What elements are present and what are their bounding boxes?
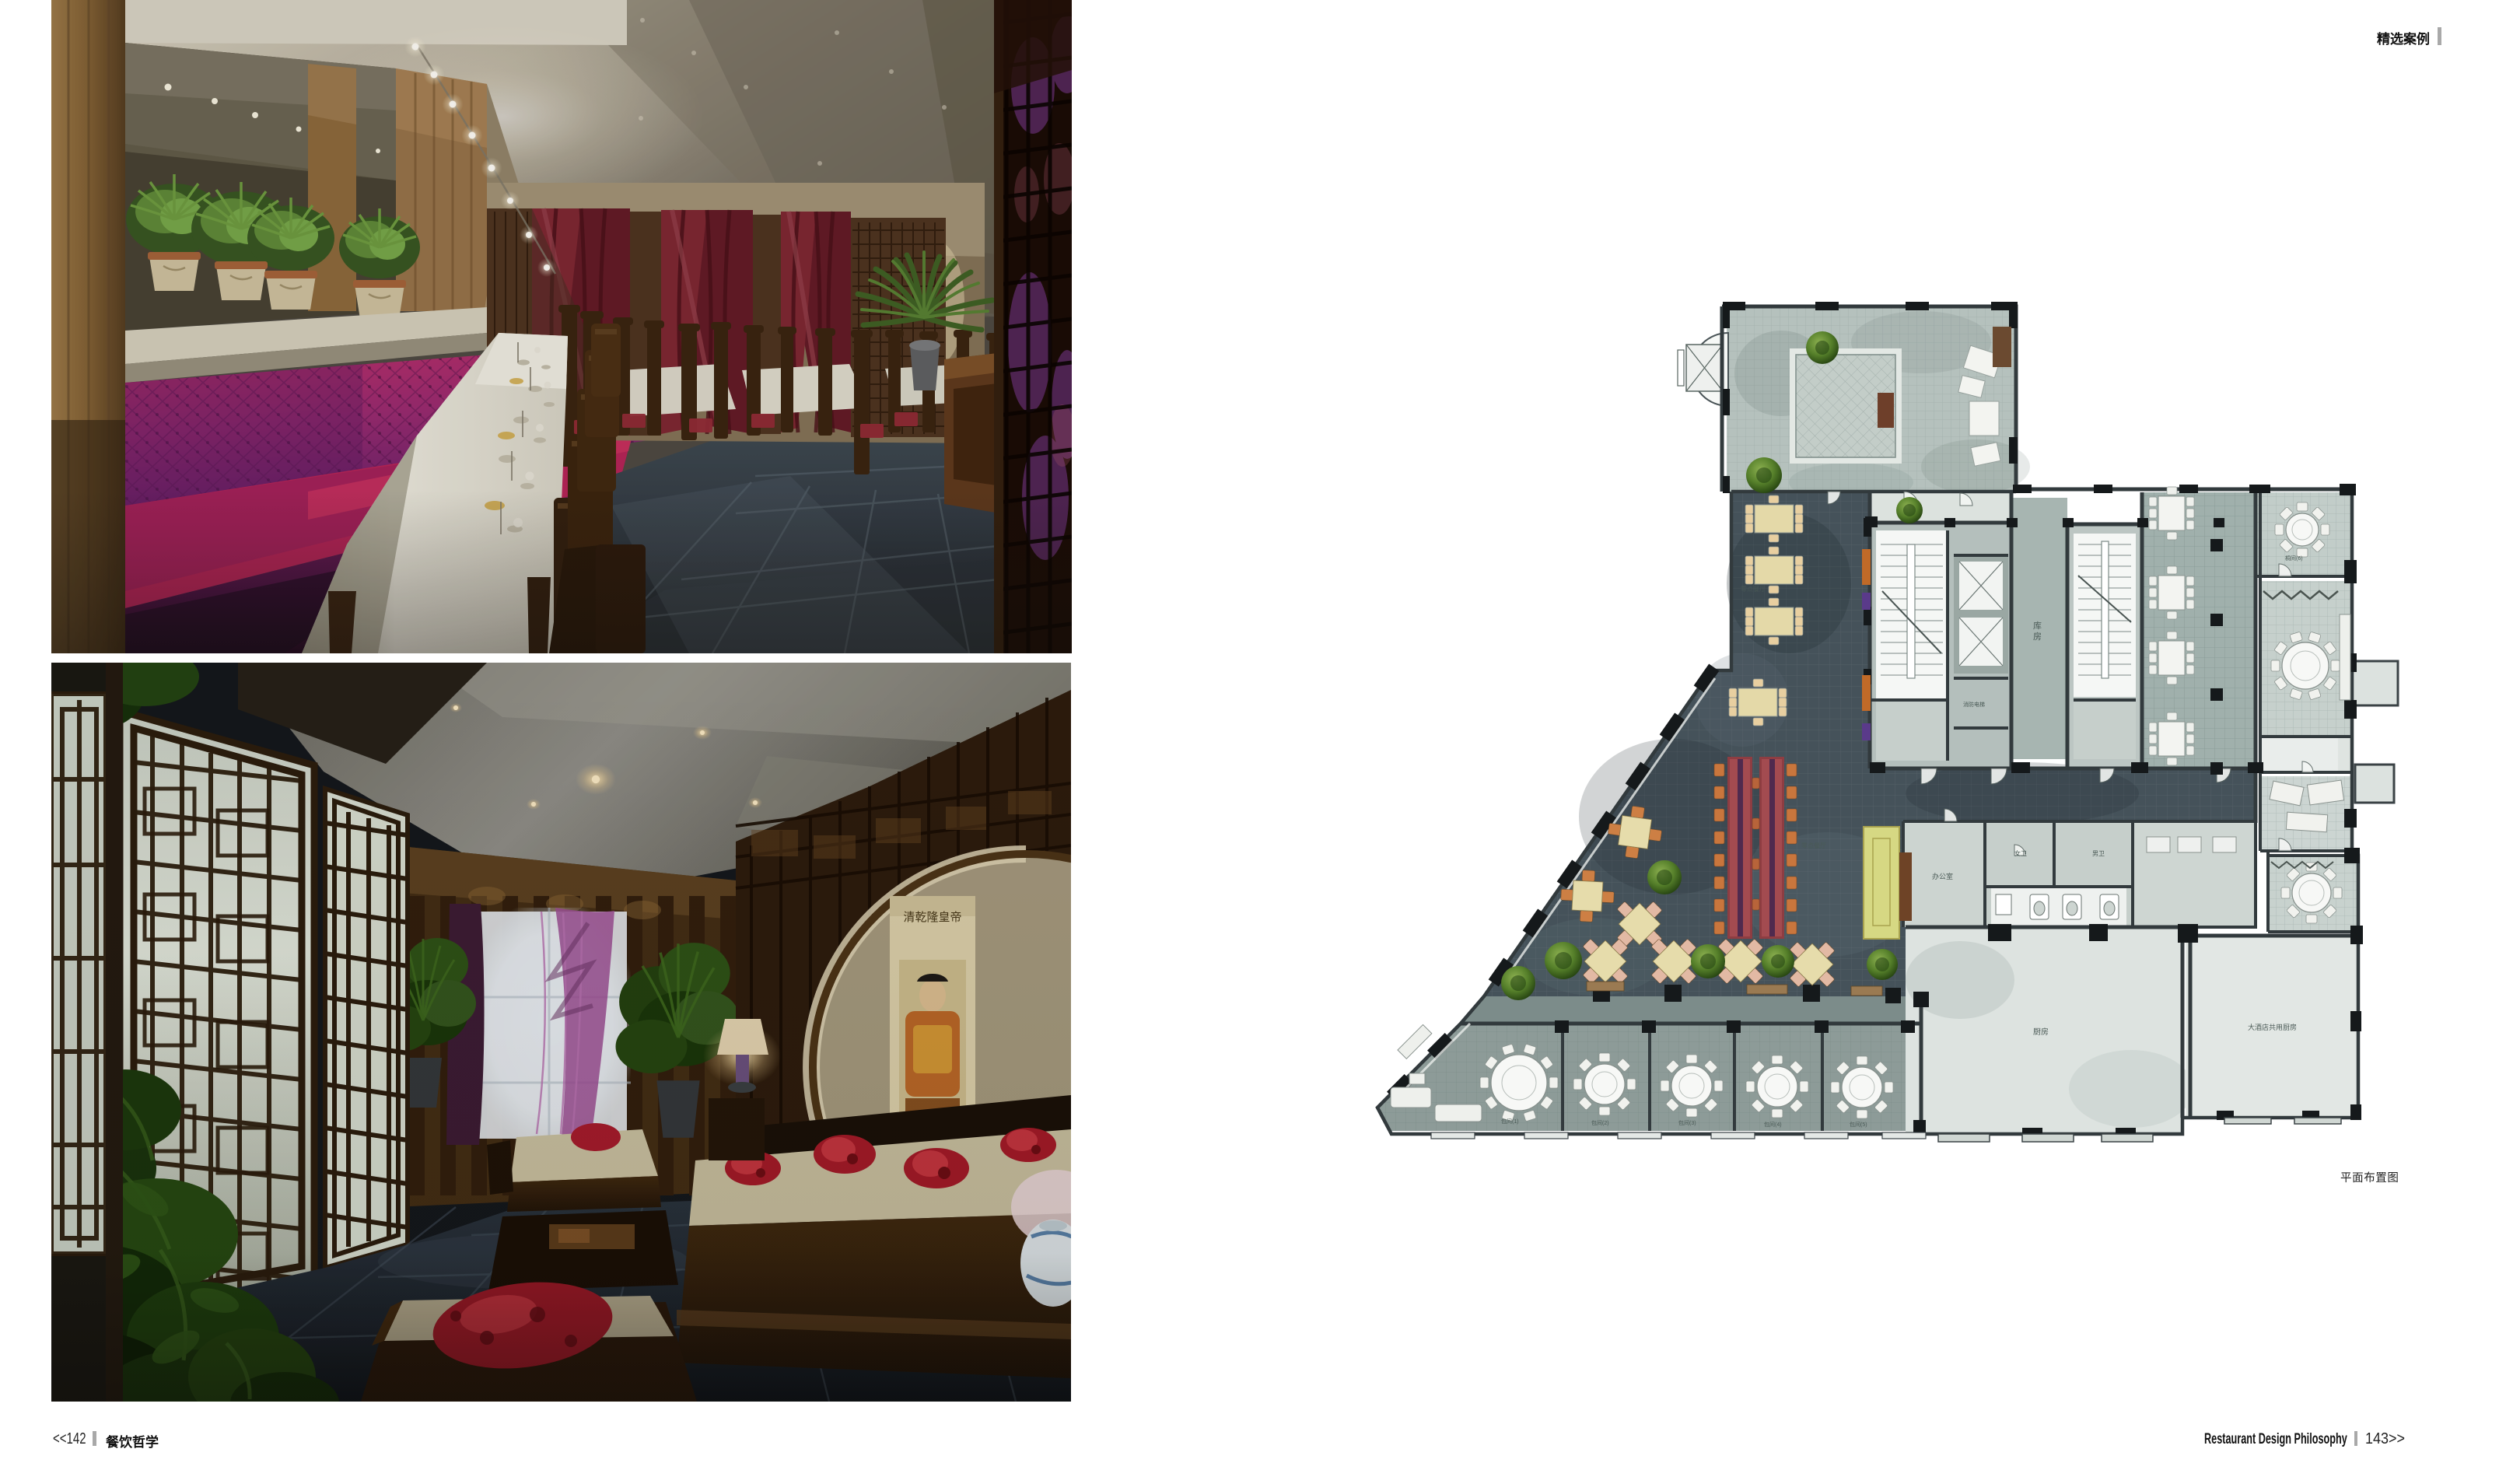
svg-text:桐间(6): 桐间(6) [2285, 555, 2303, 562]
svg-text:厨房: 厨房 [2033, 1027, 2049, 1037]
svg-text:男卫: 男卫 [2092, 850, 2105, 857]
svg-text:包间(3): 包间(3) [1678, 1119, 1696, 1126]
svg-text:房: 房 [2033, 632, 2042, 642]
svg-text:包间(1): 包间(1) [1501, 1118, 1519, 1125]
svg-text:包间(5): 包间(5) [1850, 1121, 1867, 1128]
svg-text:女卫: 女卫 [2014, 849, 2027, 857]
svg-text:库: 库 [2033, 621, 2042, 631]
svg-text:大酒店共用厨房: 大酒店共用厨房 [2248, 1023, 2297, 1031]
svg-text:包间(4): 包间(4) [1764, 1121, 1782, 1128]
svg-text:零点餐厅: 零点餐厅 [1741, 586, 1766, 593]
svg-text:消防电梯: 消防电梯 [1963, 701, 1985, 708]
svg-text:零点餐厅: 零点餐厅 [1801, 842, 1826, 849]
svg-text:包间(2): 包间(2) [1591, 1119, 1609, 1126]
svg-text:办公室: 办公室 [1932, 872, 1953, 880]
